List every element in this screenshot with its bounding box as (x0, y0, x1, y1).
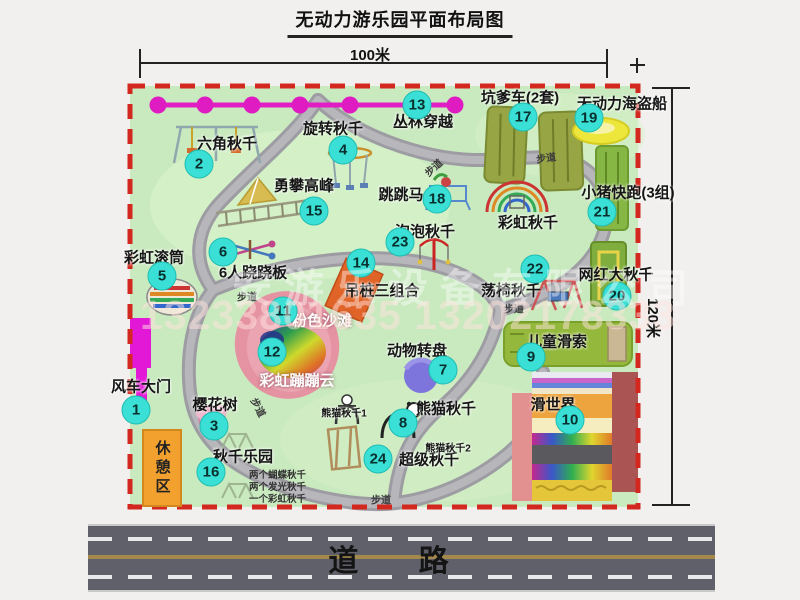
feature-badge-pink-beach: 11 (269, 297, 298, 326)
feature-badge-rotary-swing: 4 (329, 136, 358, 165)
feature-badge-hexagon-swing: 2 (185, 150, 214, 179)
feature-badge-animal-turntable: 7 (429, 356, 458, 385)
feature-badge-cherry-tree: 3 (200, 412, 229, 441)
walkway-label-3: 步道 (237, 289, 257, 304)
feature-badge-rainbow-roller: 5 (148, 262, 177, 291)
rest-area: 休憩区 (142, 429, 182, 507)
feature-label-rainbow-cloud: 彩虹蹦蹦云 (259, 370, 334, 391)
rest-area-label: 休憩区 (152, 440, 173, 497)
feature-badge-jungle-crossing: 13 (403, 91, 432, 120)
walkway-label-4: 步道 (504, 301, 524, 316)
feature-badge-kart-track: 17 (509, 103, 538, 132)
feature-badge-pirate-ship: 19 (575, 104, 604, 133)
feature-badge-super-swing: 24 (364, 445, 393, 474)
feature-label-panda-swing: 熊猫秋千 (416, 398, 476, 419)
feature-label-hanging-combo: 吊桩三组合 (344, 280, 419, 301)
feature-badge-jumping-horse: 18 (423, 185, 452, 214)
feature-badge-rainbow-cloud: 12 (258, 338, 287, 367)
feature-badge-piggy-run: 21 (588, 198, 617, 227)
feature-badge-panda-swing: 8 (389, 409, 418, 438)
road-label: 道 路 (328, 536, 474, 580)
feature-label-panda-swing-1: 熊猫秋千1 (321, 405, 367, 420)
right-dimension-label: 120米 (643, 298, 664, 338)
feature-badge-climbing-peak: 15 (300, 197, 329, 226)
swing-park-note-3: 一个彩虹秋千 (249, 491, 306, 505)
road: 道 路 (88, 524, 715, 592)
feature-label-jumping-horse: 跳跳马 (378, 184, 423, 205)
feature-badge-kids-zipline: 9 (517, 343, 546, 372)
walkway-label-6: 步道 (371, 492, 391, 507)
feature-label-windmill-gate: 风车大门 (111, 376, 171, 397)
feature-label-climbing-peak: 勇攀高峰 (274, 175, 334, 196)
feature-label-panda-swing-2: 熊猫秋千2 (425, 440, 471, 455)
feature-badge-six-seesaw: 6 (209, 238, 238, 267)
feature-badge-swing-park: 16 (197, 458, 226, 487)
walkway-label-2: 步道 (535, 148, 557, 166)
feature-badge-windmill-gate: 1 (122, 396, 151, 425)
feature-badge-slide-world: 10 (556, 406, 585, 435)
feature-label-rotary-swing: 旋转秋千 (303, 118, 363, 139)
playground-layout-diagram: 无动力游乐园平面布局图 (0, 0, 800, 600)
feature-badge-hanging-combo: 14 (347, 249, 376, 278)
top-dimension-label: 100米 (350, 44, 390, 65)
feature-badge-bubble-swing: 23 (386, 228, 415, 257)
feature-badge-big-swing: 20 (603, 282, 632, 311)
feature-label-rainbow-swing: 彩虹秋千 (498, 212, 558, 233)
feature-label-pink-beach: 粉色沙滩 (292, 310, 352, 331)
feature-badge-chair-swing: 22 (521, 255, 550, 284)
